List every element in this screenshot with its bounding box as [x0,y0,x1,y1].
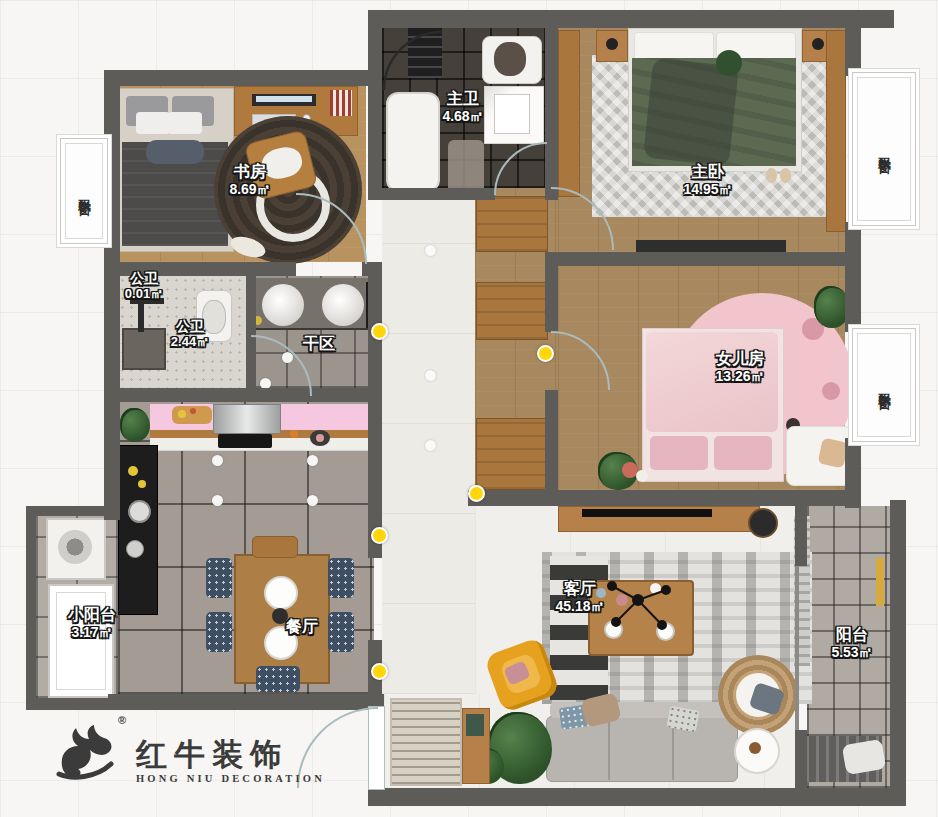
shower-arm [130,298,164,304]
bath-shelf [408,28,442,78]
study-pillow-white [168,112,202,134]
dining-plate [264,626,298,660]
sliding-door-track [795,566,799,730]
bay-window-label: 飘窗 [875,383,893,387]
wall [362,262,382,276]
wall [104,262,296,276]
wall [26,698,118,710]
kitchen-side-sink [128,500,151,523]
hall-closet [476,282,548,340]
daughter-bed-duvet [646,332,778,432]
study-books [330,90,352,116]
wardrobe-left [558,30,580,197]
dry-area-sink [262,284,304,326]
downlight [212,495,223,506]
switch-marker [371,663,388,680]
dining-plate [264,576,298,610]
entry-door-leaf [368,706,385,790]
table-decor-blue [596,588,606,598]
sofa-seam [608,716,610,780]
bath-sink-basin [494,94,530,134]
downlight [307,495,318,506]
shoe-cabinet-decor [466,714,484,736]
wall [368,276,382,558]
study-bolster [146,140,204,164]
wall [104,388,382,402]
tv [582,509,712,517]
downlight [650,583,661,594]
entry-mat [390,698,462,786]
wardrobe-right [826,30,846,232]
wall [368,10,894,28]
kitchen-lemon-decor [138,480,146,488]
wall [845,222,861,332]
dining-chair [328,612,354,652]
side-table-decor [749,742,761,754]
study-monitor-screen [256,96,312,102]
wall [545,252,857,266]
dining-chair [206,558,232,598]
bay-window-left: 飘窗 [60,138,108,244]
washing-machine-drum [58,530,92,564]
kitchen-side-counter [118,445,158,615]
bull-icon: ® [56,722,126,784]
coffee-cup [604,620,623,639]
nightstand-lamp [812,38,824,50]
toilet-public-lid [202,300,226,334]
dining-centerpiece [272,608,288,624]
switch-marker [371,323,388,340]
brand-logo: ® 红牛装饰 HONG NIU DECORATION [56,722,325,784]
slipper [780,168,791,183]
downlight [212,455,223,466]
wall [845,28,861,76]
kitchen-decor [290,430,298,438]
wall [246,276,256,388]
hall-closet [476,196,548,252]
shower-column [138,302,144,332]
kitchen-bowl [126,540,144,558]
dining-chair [256,666,300,692]
dining-chair [206,612,232,652]
speaker [748,508,778,538]
downlight [282,352,293,363]
dry-area-sink [322,284,364,326]
downlight [307,455,318,466]
wall [368,188,495,200]
wall [368,788,906,806]
logo-text: 红牛装饰 HONG NIU DECORATION [136,739,325,784]
downlight [567,583,578,594]
cooktop [218,434,272,448]
bay-window-label: 飘窗 [875,147,893,151]
bay-window-label: 飘窗 [75,189,93,193]
wall [545,266,558,332]
wall [890,500,906,796]
dining-bench [252,536,298,558]
registered-mark: ® [118,714,126,726]
kitchen-food-decor [190,408,196,414]
switch-marker [468,485,485,502]
floor-plan: 飘窗 飘窗 飘窗 [0,0,938,817]
bay-window-right-middle: 飘窗 [852,328,916,442]
logo-text-en: HONG NIU DECORATION [136,773,325,784]
small-balcony-window [48,584,114,698]
daughter-pillow [650,436,708,470]
hall-closet [476,418,548,490]
wall [26,506,118,516]
switch-marker [371,527,388,544]
master-bed-plant-decor [716,50,742,76]
shower-tray [122,328,166,370]
table-decor-pink [616,594,628,606]
coffee-cup [656,622,675,641]
bay-window-right-top: 飘窗 [852,72,916,226]
wall [795,506,807,566]
wall [795,730,807,788]
wall [545,188,558,200]
wall [26,506,36,708]
nightstand-lamp [606,38,618,50]
range-hood [213,404,281,434]
wall [368,28,382,190]
kitchen-pan-content [316,434,324,442]
bedroom-dresser [636,240,786,252]
kitchen-lemon-decor [128,466,138,476]
downlight [425,245,436,256]
daughter-pillow [714,436,772,470]
daughter-bench-pillow [818,438,849,469]
slipper [766,168,777,183]
switch-marker [537,345,554,362]
logo-text-cn: 红牛装饰 [136,739,325,770]
study-pillow-white [136,112,170,134]
bathtub [386,92,440,192]
kitchen-plant [120,408,150,442]
balcony-hanging-item [876,558,884,606]
downlight [425,440,436,451]
wall [545,28,558,188]
dining-chair [328,558,354,598]
wall [108,694,374,710]
daughter-decor-white [636,470,648,482]
daughter-rug-dot [822,382,840,400]
kitchen-food-decor [178,410,186,418]
wall [468,490,858,506]
downlight [425,370,436,381]
wall [104,70,382,86]
wall [545,390,558,490]
toilet-master-lid [494,42,526,76]
